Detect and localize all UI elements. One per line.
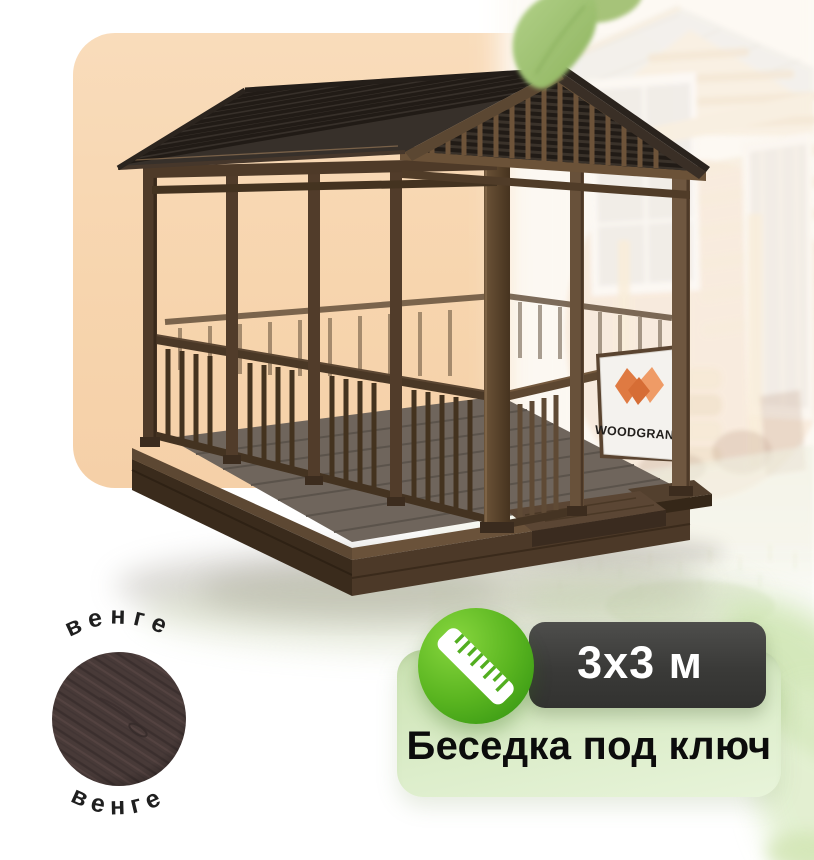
- brand-sign: WOODGRAND: [594, 345, 684, 462]
- svg-text:венге: венге: [60, 602, 177, 643]
- leaf-icon: [513, 0, 648, 89]
- size-badge: 3x3 м: [529, 622, 766, 708]
- title-badge-label: Беседка под ключ: [397, 726, 781, 766]
- material-swatch-label-bottom: венге: [67, 781, 171, 820]
- material-swatch: венге венге: [10, 598, 230, 853]
- size-badge-label: 3x3 м: [577, 637, 703, 689]
- material-swatch-label-top: венге: [60, 602, 177, 643]
- ruler-icon: [418, 608, 534, 724]
- size-badge-circle: [418, 608, 534, 724]
- interior-railings: [165, 296, 672, 376]
- svg-text:венге: венге: [67, 781, 171, 820]
- product-image: WOODGRAND: [0, 0, 814, 860]
